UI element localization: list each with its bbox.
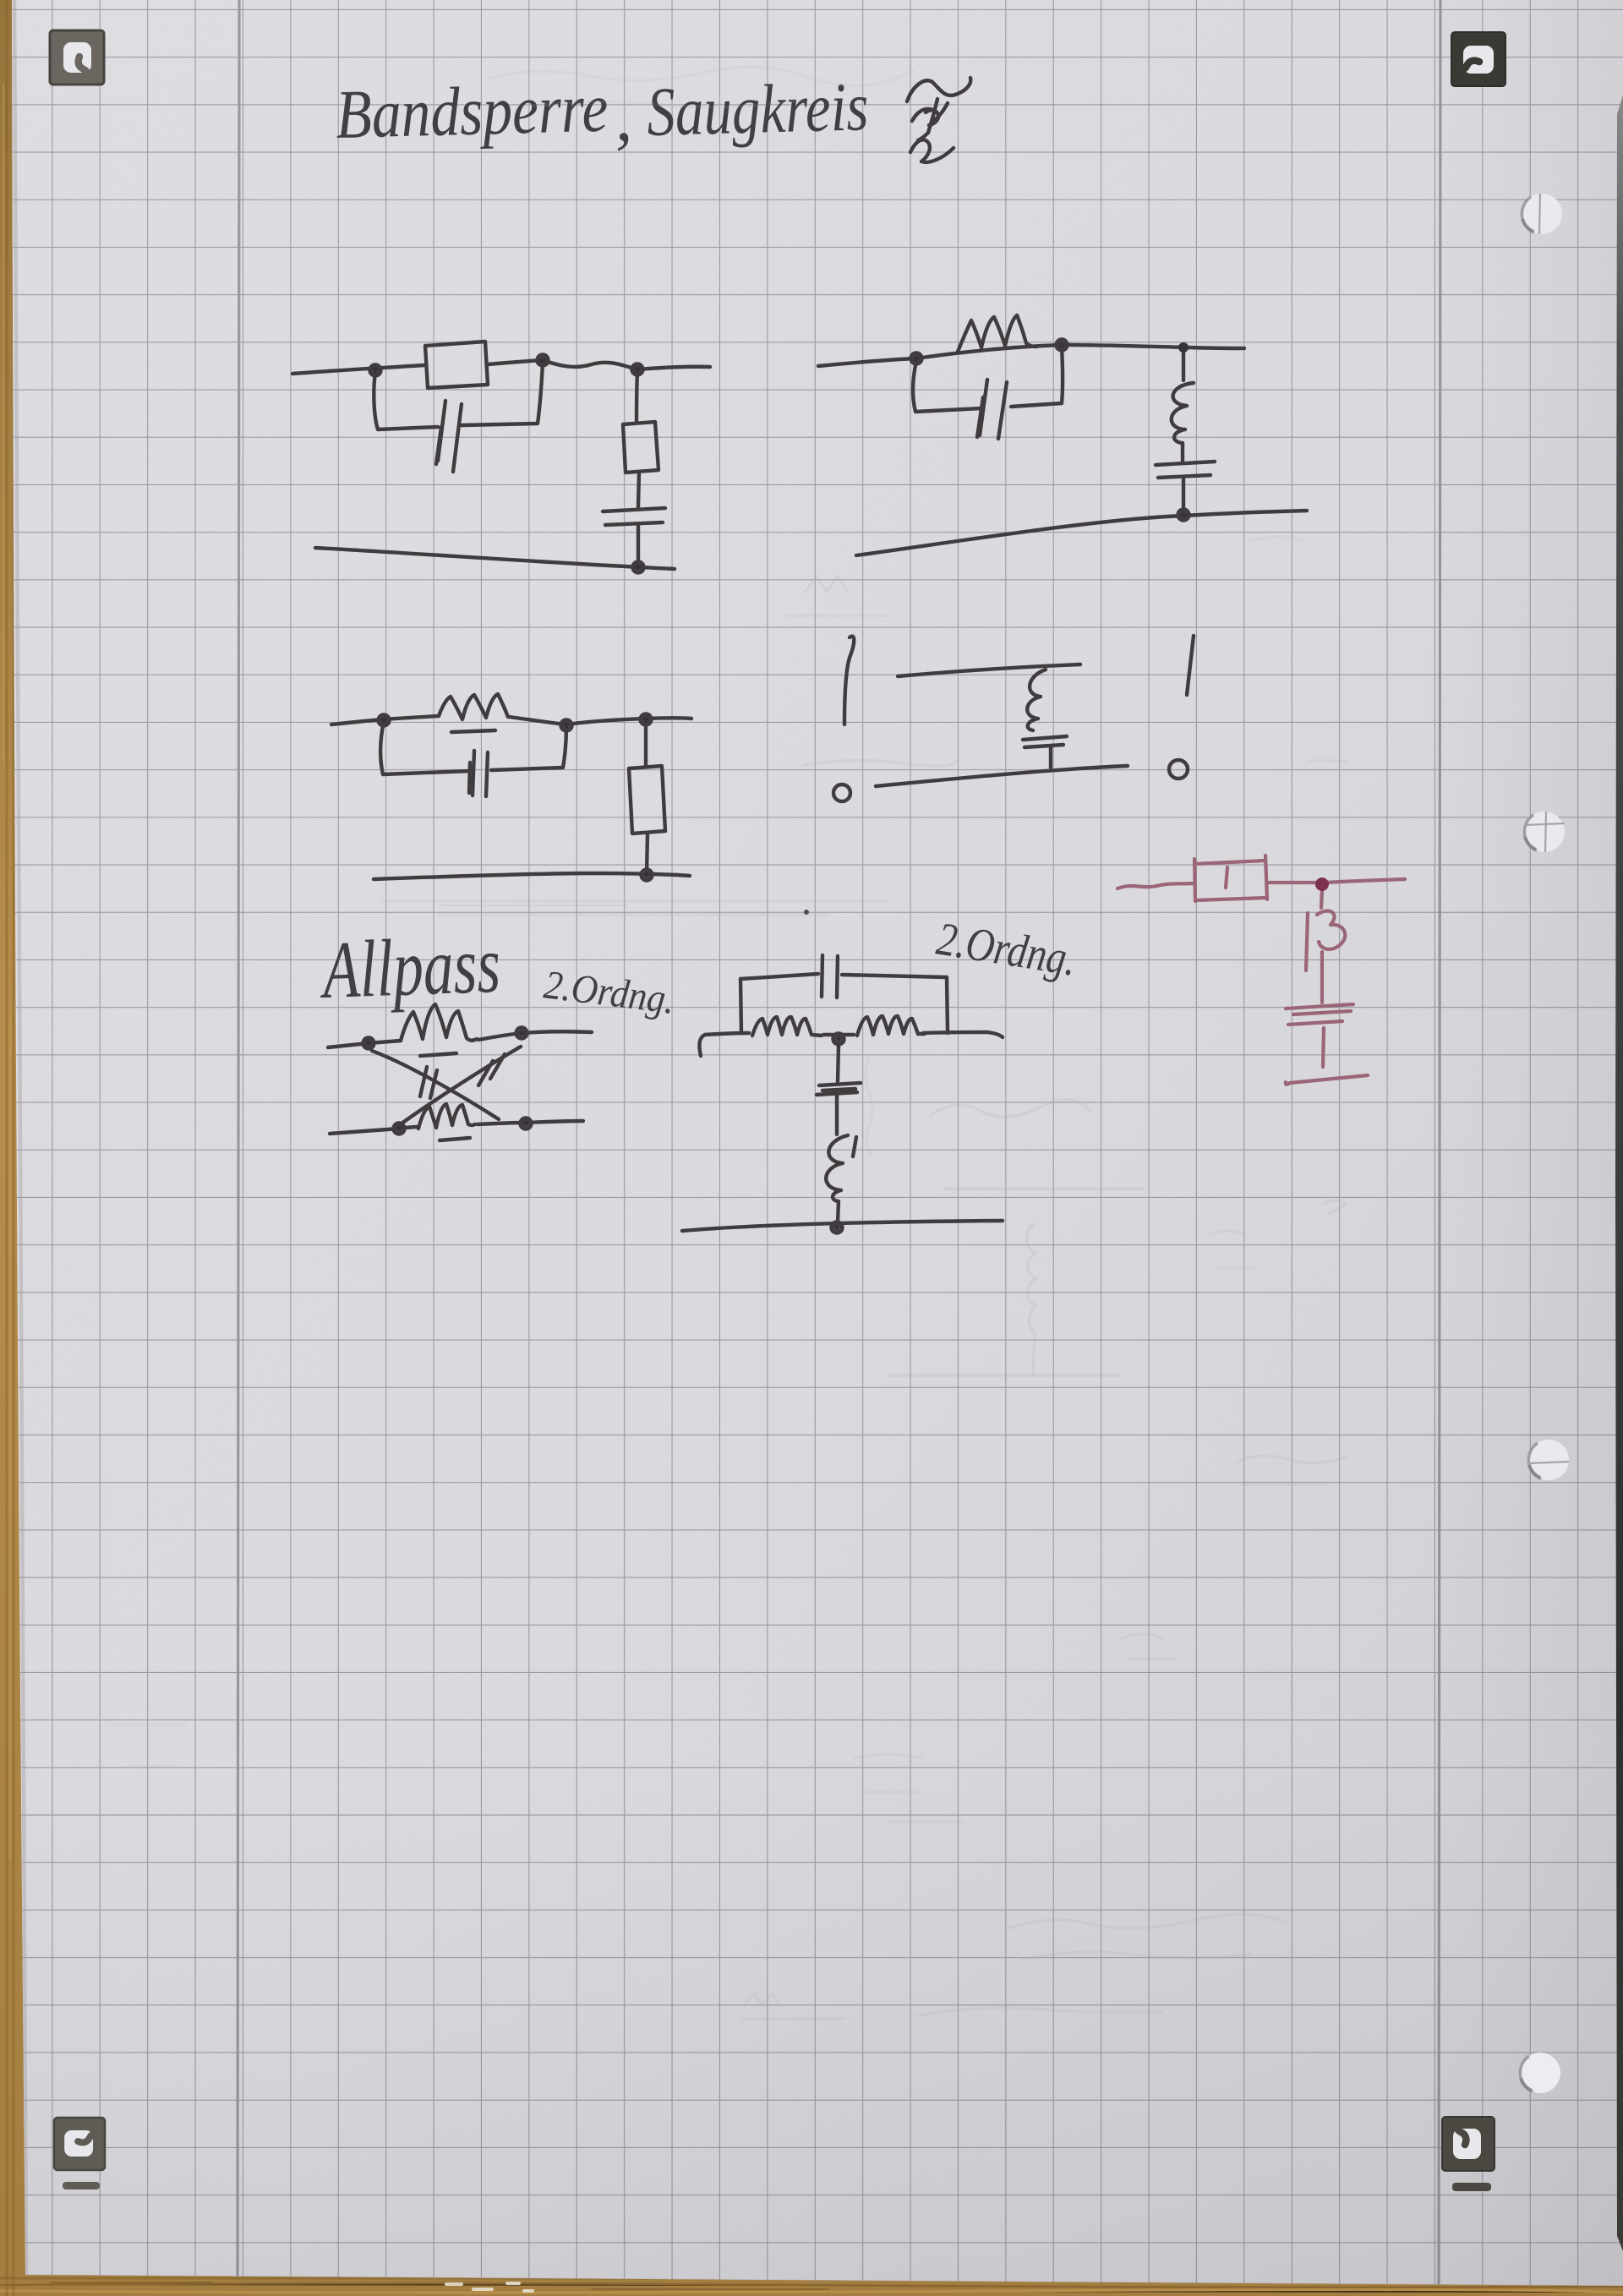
svg-text:Bandsperre: Bandsperre [335, 69, 609, 153]
svg-text:Allpass: Allpass [318, 919, 502, 1015]
svg-text:,: , [614, 78, 633, 156]
svg-text:Saugkreis: Saugkreis [646, 68, 869, 150]
